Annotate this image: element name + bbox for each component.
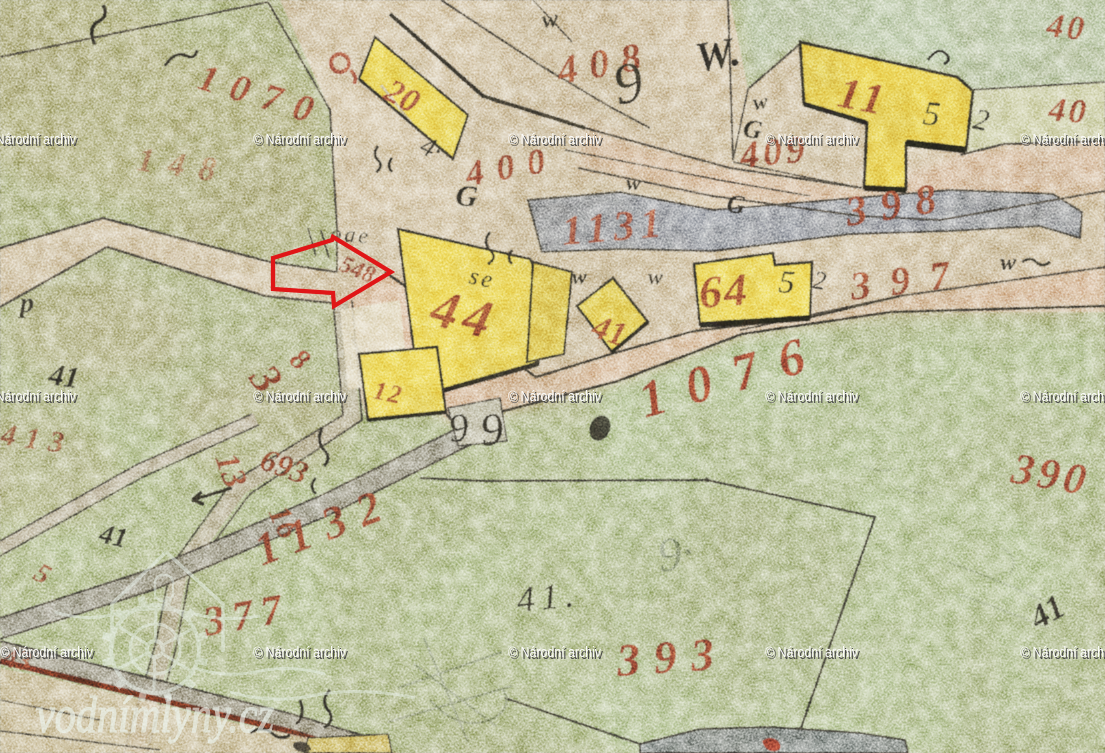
svg-text:© Národní archiv: © Národní archiv (0, 132, 77, 148)
svg-text:© Národní archiv: © Národní archiv (1020, 132, 1105, 148)
svg-text:© Národní archiv: © Národní archiv (508, 389, 602, 405)
svg-text:© Národní archiv: © Národní archiv (1020, 389, 1105, 405)
svg-text:© Národní archiv: © Národní archiv (765, 132, 859, 148)
svg-text:© Národní archiv: © Národní archiv (0, 645, 94, 661)
svg-text:© Národní archiv: © Národní archiv (765, 645, 859, 661)
svg-text:© Národní archiv: © Národní archiv (0, 389, 77, 405)
svg-text:© Národní archiv: © Národní archiv (253, 132, 347, 148)
svg-text:© Národní archiv: © Národní archiv (1020, 645, 1105, 661)
svg-text:© Národní archiv: © Národní archiv (765, 389, 859, 405)
svg-text:© Národní archiv: © Národní archiv (508, 645, 602, 661)
svg-text:© Národní archiv: © Národní archiv (253, 389, 347, 405)
svg-text:© Národní archiv: © Národní archiv (508, 132, 602, 148)
svg-text:© Národní archiv: © Národní archiv (253, 645, 347, 661)
svg-text:vodnímlyny.cz: vodnímlyny.cz (36, 687, 274, 744)
